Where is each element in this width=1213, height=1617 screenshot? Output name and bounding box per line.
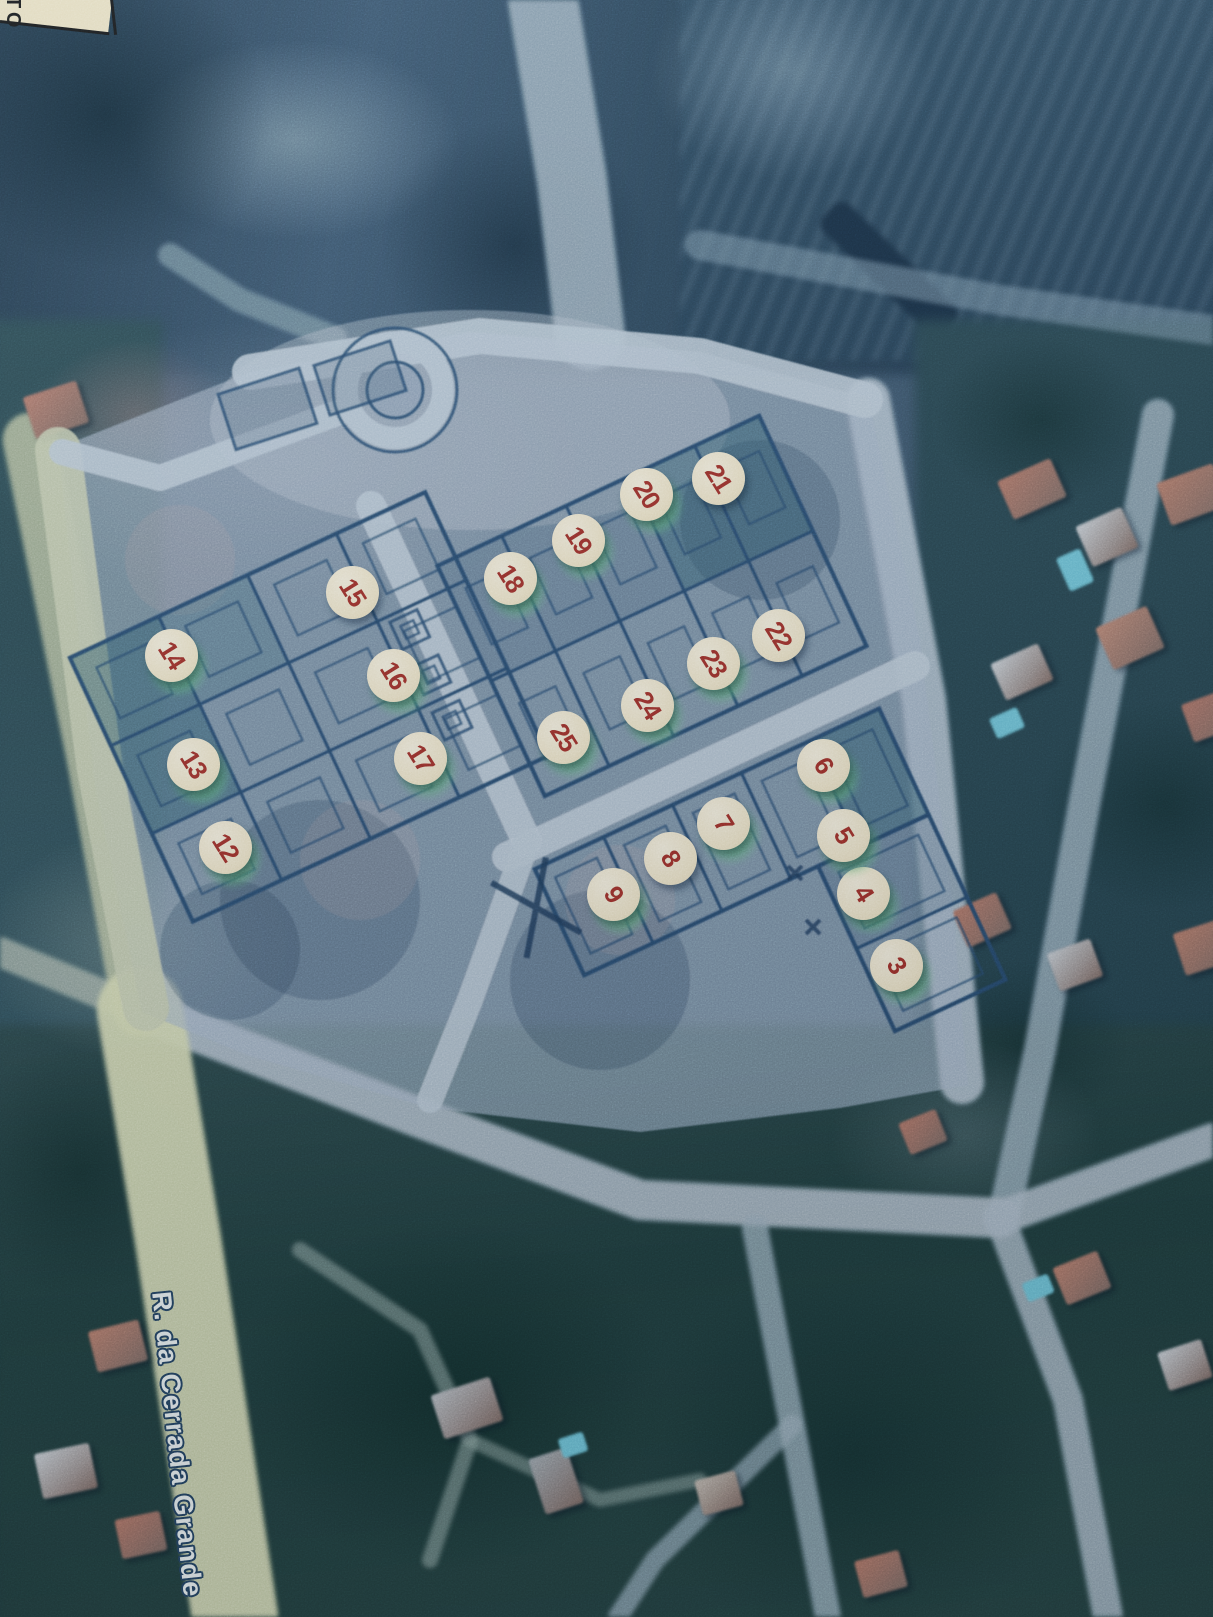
lot-number: 22: [741, 598, 814, 671]
lot-marker-12: 12: [199, 821, 252, 874]
lot-marker-24: 24: [621, 679, 674, 732]
lot-number: 8: [633, 821, 706, 894]
lot-marker-19: 19: [552, 514, 605, 567]
lot-number: 21: [681, 441, 754, 514]
plan-title-corner: TO: [0, 0, 120, 60]
lot-marker-7: 7: [697, 797, 750, 850]
lot-marker-25: 25: [537, 711, 590, 764]
lot-marker-16: 16: [367, 649, 420, 702]
lot-marker-15: 15: [326, 566, 379, 619]
lot-number: 15: [315, 555, 388, 628]
lot-marker-14: 14: [145, 629, 198, 682]
lot-marker-23: 23: [687, 637, 740, 690]
lot-marker-8: 8: [644, 832, 697, 885]
lot-marker-13: 13: [167, 738, 220, 791]
title-block-text: TO: [2, 0, 24, 54]
lot-marker-22: 22: [752, 609, 805, 662]
lot-marker-17: 17: [394, 732, 447, 785]
lot-marker-3: 3: [870, 939, 923, 992]
lot-marker-5: 5: [817, 809, 870, 862]
lot-marker-18: 18: [484, 552, 537, 605]
lot-marker-9: 9: [587, 868, 640, 921]
title-block-border: [110, 0, 117, 35]
lot-marker-6: 6: [797, 739, 850, 792]
lot-marker-21: 21: [692, 452, 745, 505]
printed-aerial-map-photo: 34567891213141516171819202122232425 R. d…: [0, 0, 1213, 1617]
lot-marker-20: 20: [620, 468, 673, 521]
